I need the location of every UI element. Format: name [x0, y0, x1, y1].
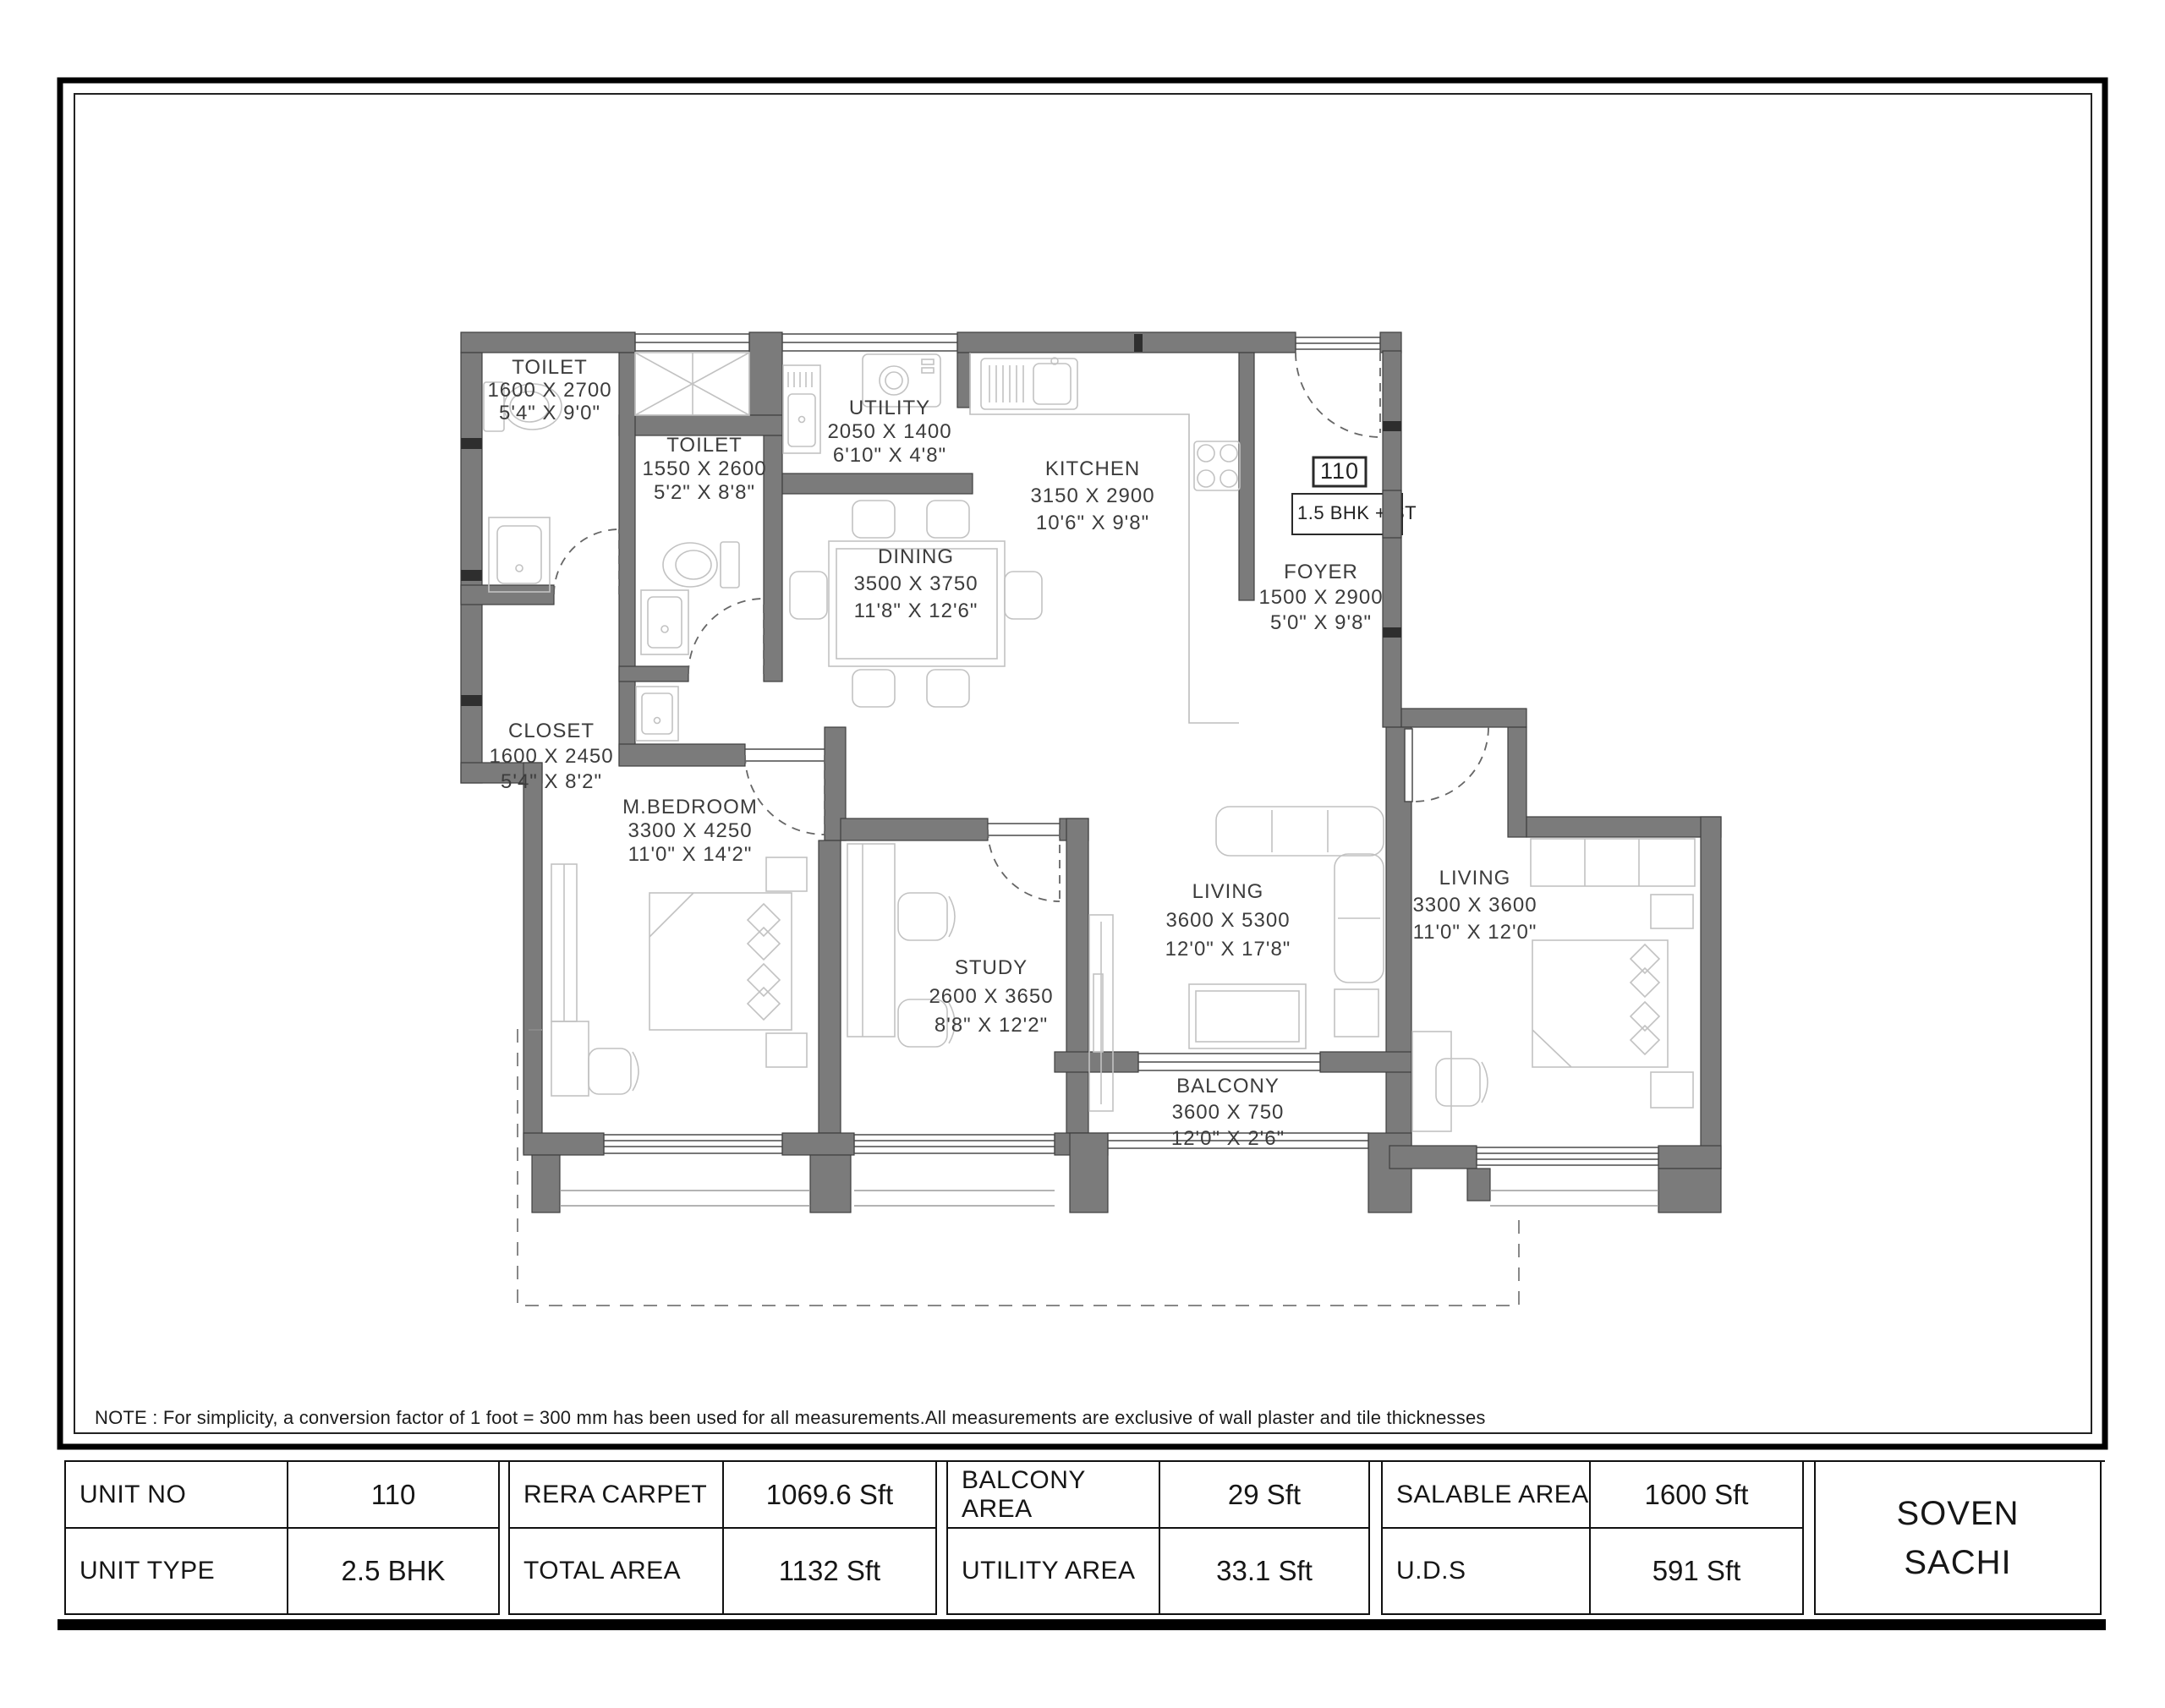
- uds-value: 591 Sft: [1591, 1529, 1802, 1613]
- lobby-vanity-icon: [636, 687, 678, 741]
- door-leaf: [1405, 729, 1412, 802]
- utility-area-label: UTILITY AREA: [948, 1529, 1160, 1613]
- table-group-balcony-utility: BALCONY AREA 29 Sft UTILITY AREA 33.1 Sf…: [946, 1460, 1370, 1615]
- mbedroom-desk-chair-icon: [551, 1021, 639, 1096]
- room-label-living: LIVING: [1192, 880, 1264, 903]
- floor-plan-svg: 110 1.5 BHK + ST TOILET 1600 X 2700 5'4"…: [0, 0, 2165, 1708]
- total-area-value: 1132 Sft: [724, 1529, 935, 1613]
- svg-text:5'4" X 8'2": 5'4" X 8'2": [501, 770, 602, 793]
- svg-text:11'8" X 12'6": 11'8" X 12'6": [854, 599, 978, 622]
- uds-label: U.D.S: [1383, 1529, 1591, 1613]
- svg-text:11'0" X 14'2": 11'0" X 14'2": [628, 843, 753, 866]
- toilet2-vanity-icon: [641, 590, 688, 654]
- room-label-balcony: BALCONY: [1176, 1075, 1280, 1098]
- svg-text:11'0" X 12'0": 11'0" X 12'0": [1413, 921, 1537, 944]
- svg-text:6'10" X 4'8": 6'10" X 4'8": [833, 444, 946, 467]
- room-label-foyer: FOYER: [1284, 561, 1358, 583]
- hob-icon: [1194, 441, 1240, 490]
- living-tv-unit-icon: [1089, 915, 1113, 1111]
- svg-text:12'0" X 2'6": 12'0" X 2'6": [1171, 1127, 1285, 1150]
- page-frame: [60, 80, 2105, 1447]
- room-label-toilet1: TOILET: [512, 356, 588, 379]
- balcony-area-label: BALCONY AREA: [948, 1462, 1160, 1529]
- room-label-closet: CLOSET: [508, 720, 595, 742]
- salable-area-value: 1600 Sft: [1591, 1462, 1802, 1529]
- utility-sink-icon: [783, 365, 820, 453]
- svg-text:5'0" X 9'8": 5'0" X 9'8": [1270, 611, 1372, 634]
- table-group-brand: SOVEN SACHI: [1814, 1460, 2102, 1615]
- svg-text:1550 X 2600: 1550 X 2600: [642, 457, 766, 480]
- brand-line2: SACHI: [1904, 1538, 2011, 1587]
- rera-carpet-value: 1069.6 Sft: [724, 1462, 935, 1529]
- mbedroom-bed-icon: [649, 857, 807, 1067]
- room-label-toilet2: TOILET: [666, 434, 743, 457]
- plinth-lines: [560, 1191, 1658, 1206]
- svg-text:5'2" X 8'8": 5'2" X 8'8": [654, 481, 755, 504]
- note-text: NOTE : For simplicity, a conversion fact…: [95, 1407, 1486, 1428]
- svg-text:2050 X 1400: 2050 X 1400: [827, 420, 951, 443]
- brand-line1: SOVEN: [1896, 1489, 2019, 1538]
- kitchen-sink-icon: [981, 358, 1077, 409]
- svg-text:3300 X 4250: 3300 X 4250: [628, 819, 752, 842]
- unit-badge-number: 110: [1320, 458, 1359, 484]
- svg-text:5'4" X 9'0": 5'4" X 9'0": [499, 402, 600, 424]
- drawing-sheet: 110 1.5 BHK + ST TOILET 1600 X 2700 5'4"…: [0, 0, 2165, 1708]
- svg-text:3150 X 2900: 3150 X 2900: [1030, 484, 1154, 507]
- room-label-study: STUDY: [955, 956, 1028, 979]
- utility-area-value: 33.1 Sft: [1160, 1529, 1368, 1613]
- room-label-dining: DINING: [878, 545, 954, 568]
- svg-text:8'8" X 12'2": 8'8" X 12'2": [935, 1014, 1048, 1037]
- unit-no-value: 110: [288, 1462, 498, 1529]
- svg-text:3600 X 5300: 3600 X 5300: [1165, 909, 1290, 932]
- svg-text:1600 X 2700: 1600 X 2700: [487, 379, 611, 402]
- svg-text:3600 X 750: 3600 X 750: [1172, 1101, 1285, 1124]
- room-label-kitchen: KITCHEN: [1045, 457, 1140, 480]
- room-label-mbedroom: M.BEDROOM: [622, 796, 758, 818]
- svg-text:10'6" X 9'8": 10'6" X 9'8": [1036, 512, 1149, 534]
- balcony-area-value: 29 Sft: [1160, 1462, 1368, 1529]
- salable-area-label: SALABLE AREA: [1383, 1462, 1591, 1529]
- unit-type-label: UNIT TYPE: [66, 1529, 288, 1613]
- svg-text:3500 X 3750: 3500 X 3750: [853, 572, 978, 595]
- living2-wardrobe-icon: [1531, 839, 1695, 886]
- svg-text:12'0" X 17'8": 12'0" X 17'8": [1165, 938, 1291, 961]
- rera-carpet-label: RERA CARPET: [510, 1462, 724, 1529]
- svg-text:3300 X 3600: 3300 X 3600: [1412, 894, 1537, 917]
- bottom-rule: [58, 1619, 2106, 1630]
- mbedroom-wardrobe-icon: [551, 864, 577, 1021]
- table-group-area: RERA CARPET 1069.6 Sft TOTAL AREA 1132 S…: [508, 1460, 937, 1615]
- unit-type-value: 2.5 BHK: [288, 1529, 498, 1613]
- shaft-x-icon: [635, 353, 749, 415]
- living2-desk-chair-icon: [1412, 1032, 1488, 1131]
- svg-text:1500 X 2900: 1500 X 2900: [1258, 586, 1383, 609]
- unit-info-table: UNIT NO 110 UNIT TYPE 2.5 BHK RERA CARPE…: [64, 1460, 2105, 1615]
- toilet1-vanity-icon: [489, 517, 550, 592]
- living2-bed-icon: [1532, 895, 1693, 1108]
- toilet2-wc-icon: [663, 542, 739, 588]
- brand-name: SOVEN SACHI: [1816, 1462, 2100, 1613]
- unit-no-label: UNIT NO: [66, 1462, 288, 1529]
- room-label-living2: LIVING: [1439, 867, 1511, 890]
- wall-clip-patch: [1383, 490, 1401, 538]
- svg-text:2600 X 3650: 2600 X 3650: [929, 985, 1053, 1008]
- table-group-salable-uds: SALABLE AREA 1600 Sft U.D.S 591 Sft: [1381, 1460, 1804, 1615]
- table-group-unit: UNIT NO 110 UNIT TYPE 2.5 BHK: [64, 1460, 500, 1615]
- kitchen-counter: [970, 353, 1239, 723]
- svg-text:1600 X 2450: 1600 X 2450: [489, 745, 613, 768]
- total-area-label: TOTAL AREA: [510, 1529, 724, 1613]
- room-label-utility: UTILITY: [849, 397, 930, 419]
- living-coffee-table-icon: [1189, 984, 1378, 1048]
- study-desk-icon: [847, 844, 895, 1037]
